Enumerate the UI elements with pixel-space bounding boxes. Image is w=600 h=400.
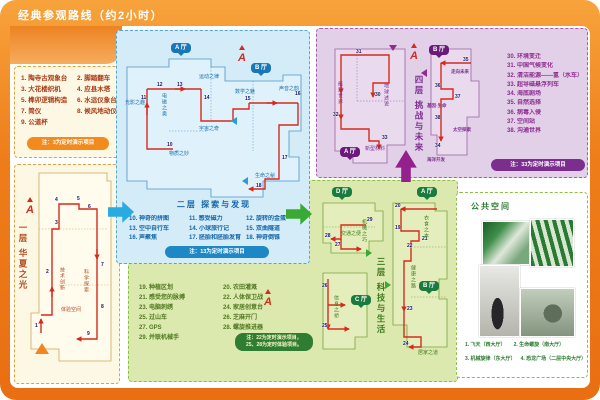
route-point-label: 31 <box>356 49 362 55</box>
list-item: 38. 沟通世界 <box>507 127 587 136</box>
floor4-note-badge: 注：33为定时演示项目 <box>491 159 585 171</box>
list-item: 36. 病毒入侵 <box>507 109 587 118</box>
north-compass-icon: A <box>23 201 37 217</box>
list-item: 30. 环境变迁 <box>507 53 587 62</box>
route-point-label: 8 <box>101 304 104 310</box>
route-point-label: 38 <box>435 115 441 121</box>
area-label: 地球述说 <box>383 83 390 107</box>
list-item: 32. 清洁能源——氢（水车） <box>507 72 587 81</box>
area-label: 电磁之奥 <box>161 93 168 117</box>
area-label: 海洋开发 <box>427 156 445 163</box>
route-point-label: 27 <box>335 242 341 248</box>
hall-c-balloon: C 厅 <box>351 295 371 305</box>
list-item: 11. 感受磁力 <box>189 215 246 225</box>
route-point-label: 33 <box>382 135 388 141</box>
area-label: 运动之律 <box>199 73 219 80</box>
photo-flying-apsaras <box>482 221 530 265</box>
photo-caption: 1. 飞天（西大厅） <box>465 341 506 348</box>
list-item: 37. 空间站 <box>507 118 587 127</box>
list-item: 2. 脚踏翻车 <box>77 73 121 84</box>
route-point-label: 2 <box>46 269 49 275</box>
floor2-map: 10 11 12 13 14 15 16 17 18 <box>117 31 311 201</box>
list-item: 28. 螺旋推进器 <box>223 323 297 333</box>
area-label: 走向未来 <box>450 68 469 75</box>
list-item: 6. 水运仪象台 <box>77 95 121 106</box>
list-item: 27. GPS <box>139 323 223 333</box>
page-title: 经典参观路线（约2小时） <box>18 7 163 23</box>
area-label: 生命之秘 <box>255 172 275 179</box>
route-point-label: 28 <box>325 233 331 239</box>
route-point-label: 13 <box>177 82 183 88</box>
photo-mechanical-melody <box>479 265 520 337</box>
route-point-label: 9 <box>87 331 90 337</box>
area-label: 声音之韵 <box>279 85 299 92</box>
list-item: 34. 海底剧场 <box>507 90 587 99</box>
hall-d-balloon: D 厅 <box>332 187 352 197</box>
hall-a-balloon: A 厅 <box>417 187 437 197</box>
route-point-label: 37 <box>455 94 461 100</box>
route-point-label: 30 <box>375 92 381 98</box>
list-item: 29. 并联机械手 <box>139 333 223 343</box>
escalator-marker-icon <box>242 177 248 185</box>
north-compass-icon: A <box>407 47 421 63</box>
escalator-marker-icon <box>231 117 237 125</box>
route-point-label: 1 <box>35 323 38 329</box>
list-item: 31. 中国气候变化 <box>507 62 587 71</box>
floor4-panel: 31 30 32 33 能源世界 地球述说 新型材料 A 厅 A 四层 挑战与未… <box>316 28 588 178</box>
photo-captions-row: 1. 飞天（西大厅） 2. 生命螺旋（南大厅） <box>465 341 564 348</box>
list-item: 35. 自然选择 <box>507 99 587 108</box>
list-item: 10. 神奇的拼图 <box>129 215 189 225</box>
list-item: 25. 过山车 <box>139 313 223 323</box>
list-item: 17. 胚胎和胚胎发育 <box>189 234 246 244</box>
list-item: 3. 大花楼织机 <box>21 84 77 95</box>
list-item: 9. 公道杯 <box>21 117 77 128</box>
floor3-title: 三层 科技与生活 <box>375 257 387 347</box>
note-line: 25、28为定时体验项目。 <box>235 342 313 349</box>
flow-marker-icon <box>421 69 427 77</box>
photo-life-spiral <box>530 219 574 267</box>
hall-b-balloon: B 厅 <box>251 63 271 73</box>
area-label: 能源世界 <box>337 81 344 105</box>
list-item: 16. 声聚焦 <box>129 234 189 244</box>
floor2-panel: 10 11 12 13 14 15 16 17 18 A 厅 B 厅 A 物质之… <box>116 30 310 264</box>
floor1-list-panel: 1. 陶寺古观象台 2. 脚踏翻车 3. 大花楼织机 4. 应县木塔 5. 榫卯… <box>14 66 120 158</box>
floor1-note-badge: 注：3为定时演示项目 <box>27 137 109 150</box>
photo-captions-row: 3. 机械旋律（东大厅） 4. 恐龙广场（二层中央大厅） <box>465 355 586 362</box>
area-label: 健康之路 <box>410 265 417 289</box>
public-space-panel: 公共空间 1. 飞天（西大厅） 2. 生命螺旋（南大厅） 3. 机械旋律（东大厅… <box>456 192 588 378</box>
entrance-marker-icon <box>35 343 49 354</box>
route-point-label: 15 <box>245 96 251 102</box>
hall-b-balloon: B 厅 <box>419 281 439 291</box>
route-point-label: 17 <box>282 155 288 161</box>
hall-a-balloon: A 厅 <box>340 147 360 157</box>
photo-caption: 2. 生命螺旋（南大厅） <box>514 341 565 348</box>
photo-dinosaur-plaza <box>520 288 575 337</box>
route-point-label: 5 <box>77 196 80 202</box>
list-item: 14. 小球旅行记 <box>189 225 246 235</box>
floor4-exhibit-list: 30. 环境变迁 31. 中国气候变化 32. 清洁能源——氢（水车） 33. … <box>507 53 587 137</box>
floor2-note-badge: 注：13为定时演示项目 <box>165 246 269 258</box>
route-point-label: 22 <box>407 243 413 249</box>
floor4-title: 四层 挑战与未来 <box>413 75 425 167</box>
route-point-label: 14 <box>204 95 210 101</box>
area-label: 衣食之本 <box>423 215 430 239</box>
area-label: 数学之魅 <box>235 88 255 95</box>
route-point-label: 25 <box>322 323 328 329</box>
area-label: 新型材料 <box>365 145 385 152</box>
list-item: 20. 农田灌溉 <box>223 283 297 293</box>
route-point-label: 10 <box>167 142 173 148</box>
hall-b-balloon: B 厅 <box>429 45 449 55</box>
list-item: 1. 陶寺古观象台 <box>21 73 77 84</box>
route-point-label: 20 <box>395 203 401 209</box>
route-point-label: 18 <box>256 183 262 189</box>
route-point-label: 35 <box>463 57 469 63</box>
area-label: 技术创新 <box>59 267 66 291</box>
area-label: 宇宙之奇 <box>199 125 219 132</box>
list-item: 13. 空中自行车 <box>129 225 189 235</box>
title-band <box>10 26 122 64</box>
map-canvas: 19. 种植区划 20. 农田灌溉 21. 感受您的脉搏 22. 人体保卫战 2… <box>10 26 590 388</box>
list-item: 22. 人体保卫战 <box>223 293 297 303</box>
note-line: 注：22为定时演示项目， <box>235 335 313 342</box>
north-compass-icon: A <box>235 49 249 65</box>
list-item: 33. 超导磁悬浮列车 <box>507 81 587 90</box>
floor1-title: 一层 华夏之光 <box>17 223 29 323</box>
list-item: 19. 种植区划 <box>139 283 223 293</box>
route-point-label: 4 <box>55 197 58 203</box>
route-point-label: 3 <box>55 220 58 226</box>
list-item: 15. 双曲隧道 <box>246 225 303 235</box>
list-item: 21. 感受您的脉搏 <box>139 293 223 303</box>
floor1-exhibit-list: 1. 陶寺古观象台 2. 脚踏翻车 3. 大花楼织机 4. 应县木塔 5. 榫卯… <box>21 73 121 128</box>
area-label: 太空探索 <box>452 126 471 133</box>
area-label: 交通之便 <box>341 230 361 237</box>
floor2-title: 二层 探索与发现 <box>153 199 275 210</box>
list-item: 18. 神奇倒锥 <box>246 234 303 244</box>
route-point-label: 23 <box>407 306 413 312</box>
area-label: 基因·生命 <box>427 102 447 109</box>
area-label: 体验空间 <box>61 306 81 313</box>
list-item: 23. 电脑刺绣 <box>139 303 223 313</box>
route-point-label: 6 <box>88 204 91 210</box>
floor4-map-b: 35 36 37 38 34 走向未来 基因·生命 太空探索 海洋开发 <box>425 41 489 169</box>
area-label: 机械之巧 <box>361 219 368 243</box>
area-label: 光影之趣 <box>125 99 145 106</box>
floor2-exhibit-list: 10. 神奇的拼图 11. 感受磁力 12. 旋转的金蛋 13. 空中自行车 1… <box>129 215 303 244</box>
list-item: 8. 候风地动仪 <box>77 106 121 117</box>
photo-caption: 3. 机械旋律（东大厅） <box>465 355 516 362</box>
route-point-label: 24 <box>403 341 409 347</box>
photo-caption: 4. 恐龙广场（二层中央大厅） <box>521 355 587 362</box>
list-item: 26. 芝麻开门 <box>223 313 297 323</box>
route-map-poster: 经典参观路线（约2小时） 19. 种植区划 20. 农田灌溉 21. 感受您的脉… <box>0 0 600 400</box>
route-point-label: 7 <box>101 262 104 268</box>
area-label: 信息之桥 <box>333 295 340 319</box>
floor1-map-panel: 1 2 3 4 5 6 7 8 9 A 一层 华夏之光 技术创新 科学探索 体验… <box>14 164 120 384</box>
route-point-label: 12 <box>157 82 163 88</box>
floor3-note-badge: 注：22为定时演示项目， 25、28为定时体验项目。 <box>235 333 313 351</box>
route-point-label: 26 <box>322 283 328 289</box>
area-label: 物质之妙 <box>169 150 189 157</box>
area-label: 居家之道 <box>418 349 438 356</box>
list-item: 4. 应县木塔 <box>77 84 121 95</box>
area-label: 科学探索 <box>83 269 90 293</box>
route-point-label: 32 <box>333 112 339 118</box>
route-point-label: 34 <box>435 143 441 149</box>
list-item: 5. 榫卯逻辑构造 <box>21 95 77 106</box>
public-space-title: 公共空间 <box>471 201 511 212</box>
list-item: 7. 简仪 <box>21 106 77 117</box>
list-item: 24. 家居创意台 <box>223 303 297 313</box>
north-compass-icon: A <box>261 293 275 309</box>
hall-a-balloon: A 厅 <box>171 43 191 53</box>
route-point-label: 36 <box>435 83 441 89</box>
route-point-label: 19 <box>395 225 401 231</box>
